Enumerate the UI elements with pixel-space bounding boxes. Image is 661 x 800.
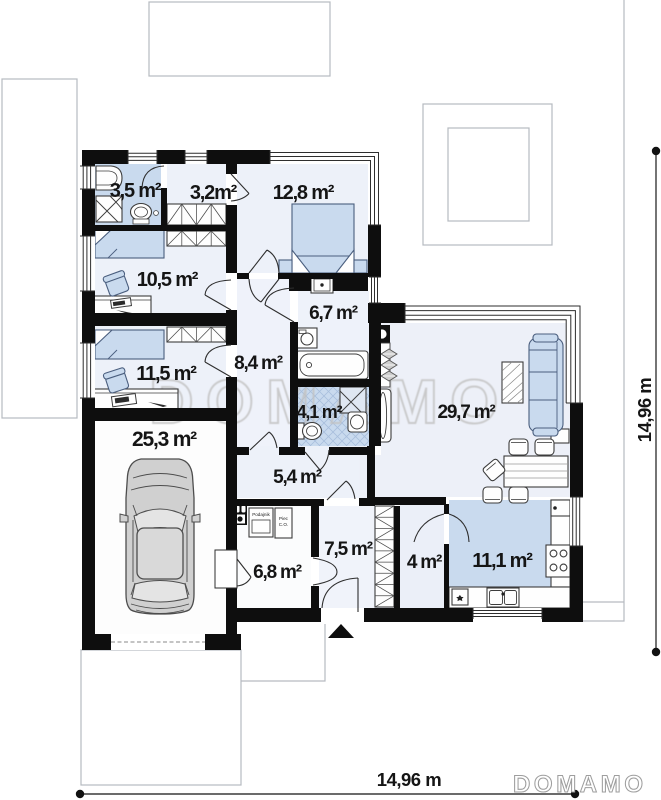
svg-text:DOMAMO: DOMAMO (513, 771, 647, 798)
svg-text:4 m²: 4 m² (407, 552, 442, 573)
svg-text:C.O.: C.O. (279, 522, 288, 527)
svg-text:11,5 m²: 11,5 m² (136, 363, 197, 385)
svg-text:Piec: Piec (279, 516, 289, 521)
svg-text:29,7 m²: 29,7 m² (437, 402, 495, 423)
svg-text:25,3 m²: 25,3 m² (132, 428, 197, 451)
svg-text:Podajnik: Podajnik (252, 512, 270, 517)
svg-text:3,5 m²: 3,5 m² (110, 180, 162, 202)
svg-text:11,1 m²: 11,1 m² (472, 550, 533, 572)
svg-text:3,2m²: 3,2m² (190, 182, 238, 204)
svg-text:8,4 m²: 8,4 m² (234, 353, 283, 374)
svg-text:7,5 m²: 7,5 m² (324, 539, 373, 560)
svg-text:5,4 m²: 5,4 m² (273, 467, 322, 488)
svg-text:4,1 m²: 4,1 m² (297, 402, 343, 422)
svg-text:14,96 m: 14,96 m (634, 378, 655, 442)
svg-text:6,8 m²: 6,8 m² (253, 562, 302, 583)
svg-text:12,8 m²: 12,8 m² (273, 182, 335, 204)
svg-text:14,96 m: 14,96 m (377, 769, 441, 790)
svg-text:6,7 m²: 6,7 m² (309, 303, 358, 324)
svg-text:10,5 m²: 10,5 m² (137, 269, 199, 291)
